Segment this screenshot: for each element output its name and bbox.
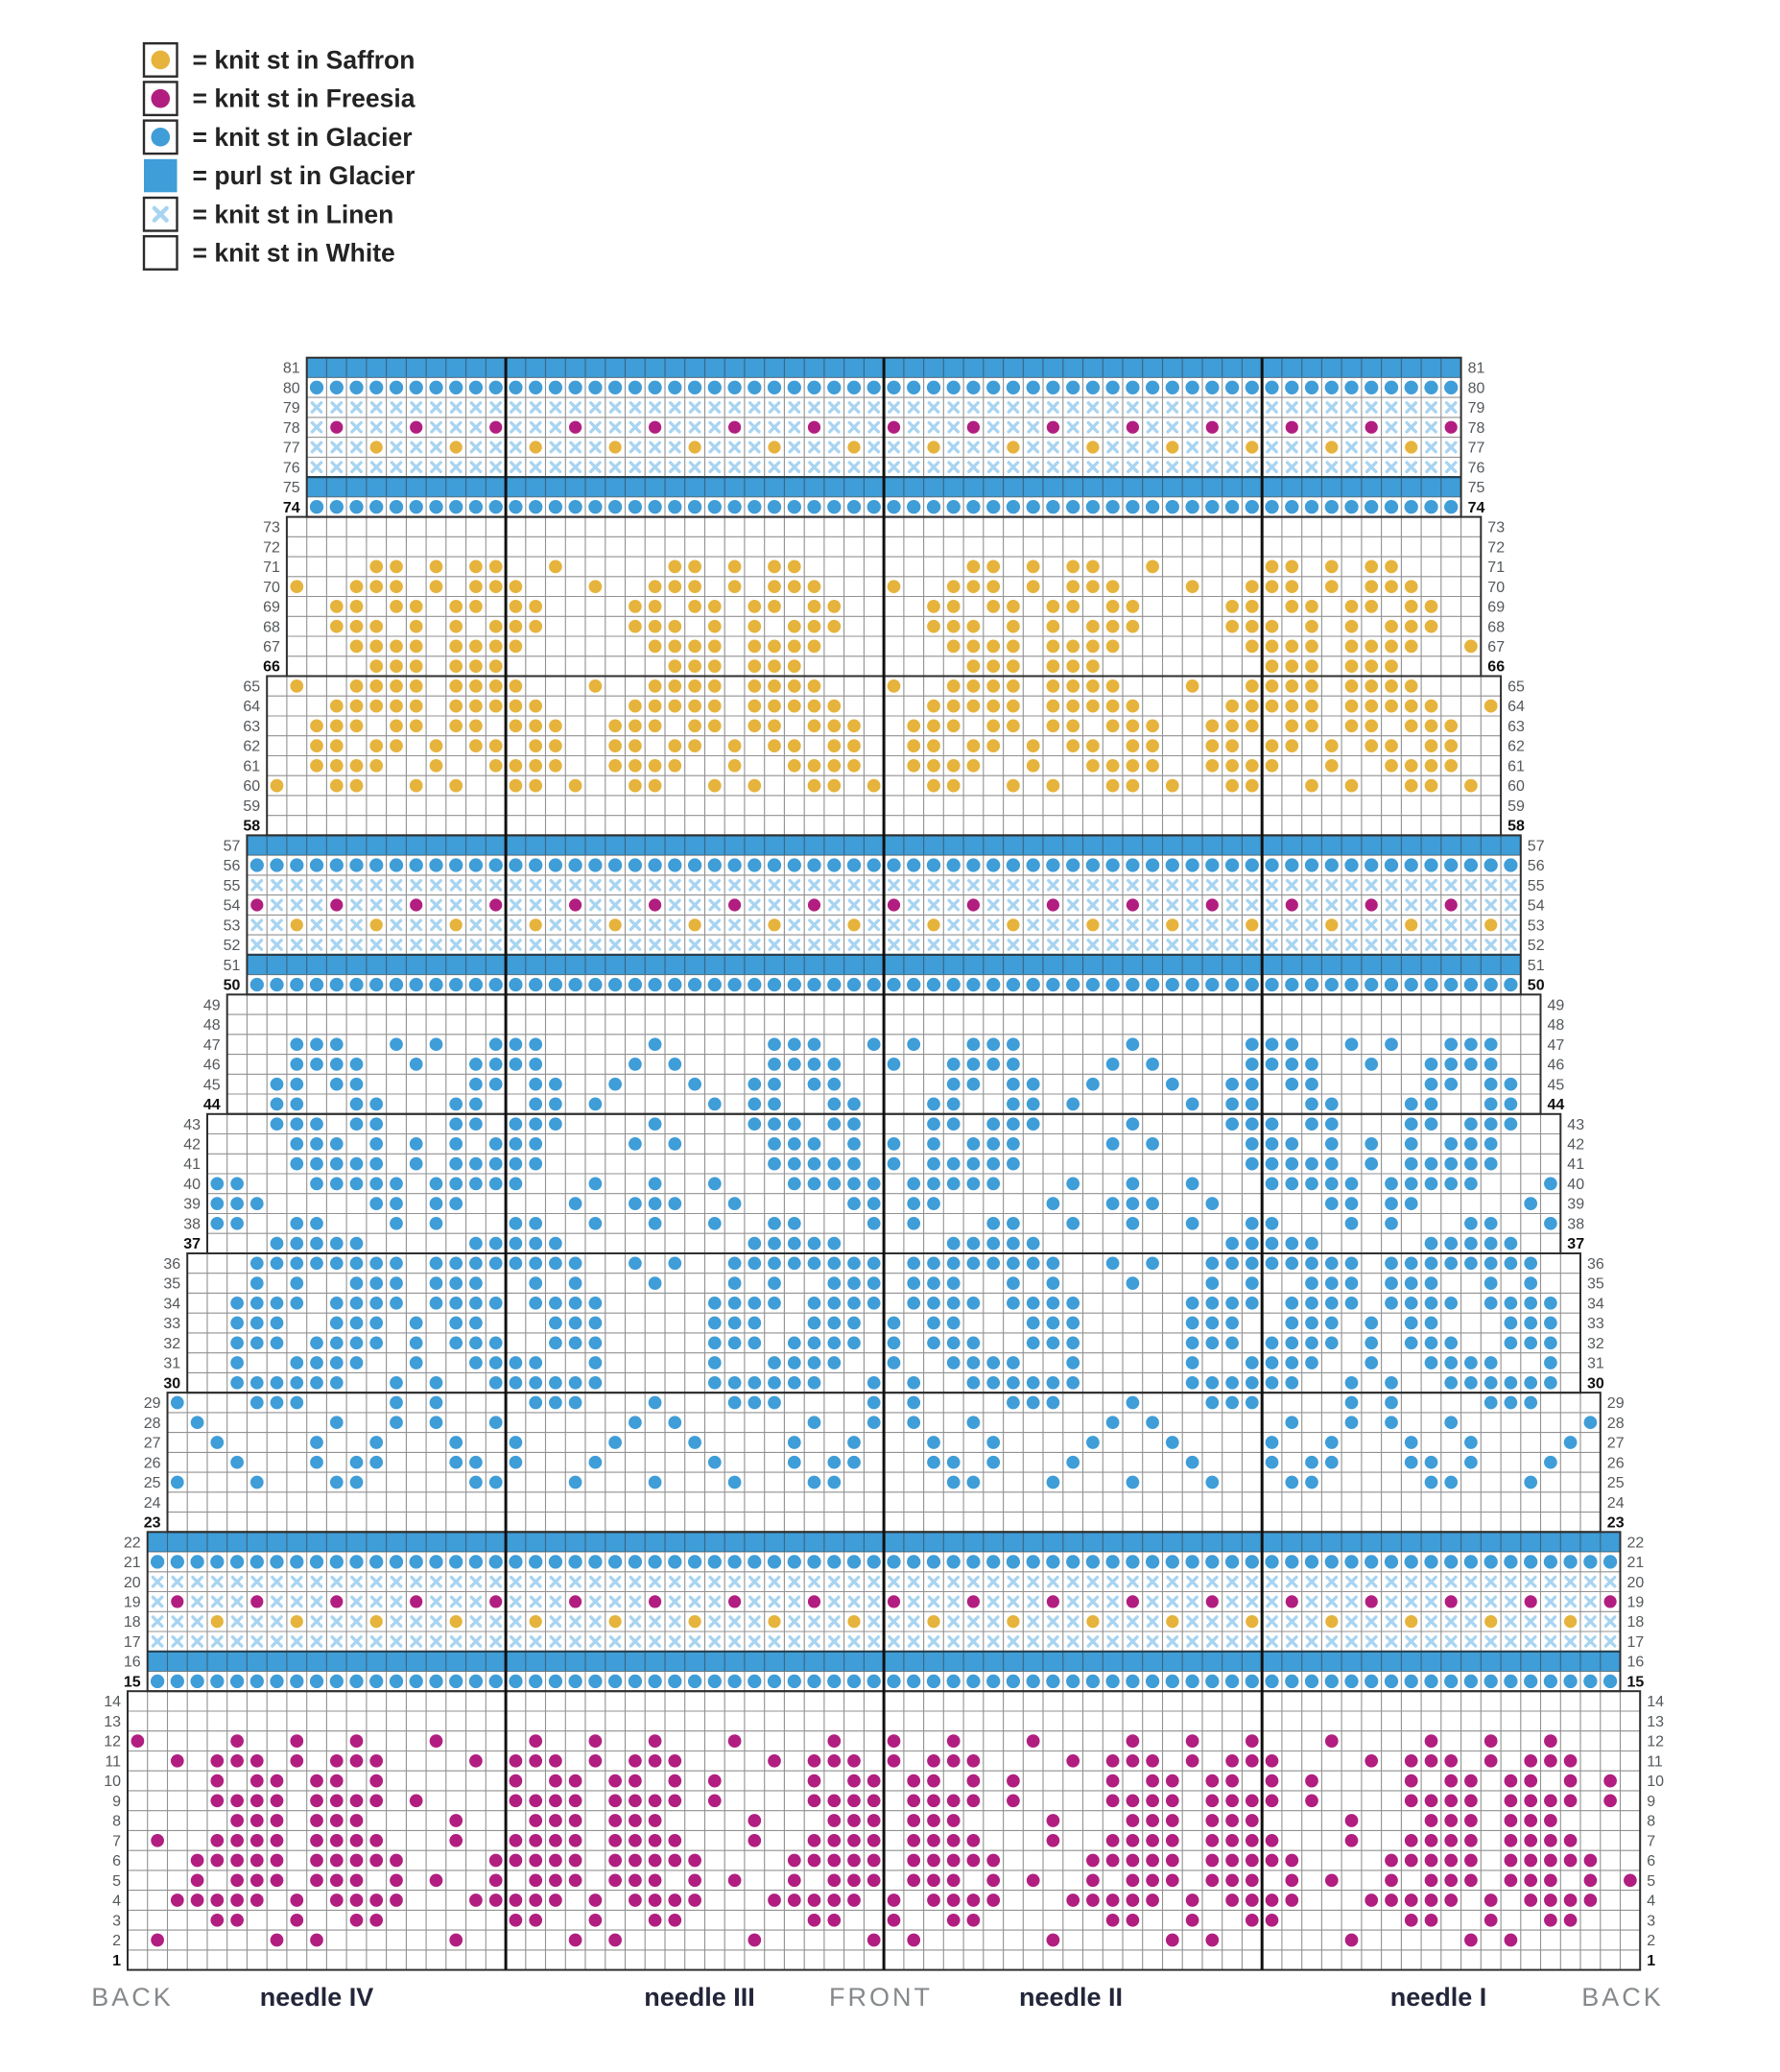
svg-text:55: 55 xyxy=(224,878,241,894)
svg-text:65: 65 xyxy=(243,679,260,696)
svg-text:26: 26 xyxy=(1607,1455,1625,1471)
svg-text:FRONT: FRONT xyxy=(829,1983,933,2012)
svg-text:40: 40 xyxy=(1567,1177,1584,1193)
svg-text:needle IV: needle IV xyxy=(260,1983,374,2012)
svg-text:42: 42 xyxy=(1567,1137,1584,1154)
svg-text:43: 43 xyxy=(183,1117,201,1133)
svg-text:7: 7 xyxy=(1647,1833,1655,1849)
svg-text:59: 59 xyxy=(1507,798,1525,815)
svg-text:24: 24 xyxy=(1607,1495,1625,1512)
svg-text:68: 68 xyxy=(263,619,280,635)
svg-text:35: 35 xyxy=(163,1276,180,1293)
svg-text:= knit st in Glacier: = knit st in Glacier xyxy=(193,123,413,152)
svg-text:24: 24 xyxy=(144,1495,161,1512)
svg-text:70: 70 xyxy=(1487,580,1505,596)
svg-text:5: 5 xyxy=(1647,1873,1655,1890)
svg-text:= knit st in Freesia: = knit st in Freesia xyxy=(193,84,415,113)
svg-text:23: 23 xyxy=(144,1515,161,1532)
svg-text:36: 36 xyxy=(163,1256,180,1273)
svg-text:12: 12 xyxy=(1647,1734,1664,1750)
svg-text:68: 68 xyxy=(1487,619,1505,635)
svg-text:49: 49 xyxy=(203,997,221,1013)
svg-text:21: 21 xyxy=(1627,1555,1645,1571)
svg-text:18: 18 xyxy=(1627,1614,1645,1631)
svg-text:2: 2 xyxy=(1647,1933,1655,1949)
svg-text:56: 56 xyxy=(224,858,241,874)
svg-text:14: 14 xyxy=(104,1694,121,1710)
svg-text:66: 66 xyxy=(1487,659,1505,676)
svg-text:41: 41 xyxy=(183,1156,201,1173)
svg-text:15: 15 xyxy=(1627,1675,1645,1691)
svg-text:65: 65 xyxy=(1507,679,1525,696)
svg-text:18: 18 xyxy=(124,1614,141,1631)
svg-text:76: 76 xyxy=(283,460,300,476)
svg-text:71: 71 xyxy=(263,560,280,576)
svg-text:needle II: needle II xyxy=(1019,1983,1123,2012)
svg-text:52: 52 xyxy=(1528,938,1545,954)
svg-text:62: 62 xyxy=(243,739,260,755)
svg-text:60: 60 xyxy=(243,778,260,795)
svg-text:11: 11 xyxy=(1647,1753,1663,1770)
svg-text:58: 58 xyxy=(243,819,260,835)
svg-text:26: 26 xyxy=(144,1455,161,1471)
svg-text:11: 11 xyxy=(105,1753,121,1770)
svg-text:40: 40 xyxy=(183,1177,201,1193)
svg-text:28: 28 xyxy=(1607,1416,1625,1432)
svg-text:2: 2 xyxy=(112,1933,121,1949)
svg-text:25: 25 xyxy=(144,1475,161,1491)
svg-text:31: 31 xyxy=(163,1356,180,1372)
svg-text:53: 53 xyxy=(1528,917,1545,934)
svg-text:50: 50 xyxy=(1528,978,1545,994)
svg-text:47: 47 xyxy=(1548,1037,1565,1054)
svg-text:42: 42 xyxy=(183,1137,201,1154)
svg-text:8: 8 xyxy=(112,1814,121,1830)
svg-text:77: 77 xyxy=(283,441,300,457)
svg-text:30: 30 xyxy=(1587,1375,1604,1392)
svg-text:62: 62 xyxy=(1507,739,1525,755)
svg-text:22: 22 xyxy=(124,1535,141,1551)
svg-text:81: 81 xyxy=(283,361,300,377)
svg-text:81: 81 xyxy=(1468,361,1485,377)
svg-text:58: 58 xyxy=(1507,819,1525,835)
svg-text:55: 55 xyxy=(1528,878,1545,894)
svg-text:13: 13 xyxy=(104,1714,121,1730)
svg-text:61: 61 xyxy=(243,758,260,774)
svg-text:78: 78 xyxy=(1468,420,1485,437)
svg-text:45: 45 xyxy=(203,1077,221,1093)
svg-text:13: 13 xyxy=(1647,1714,1664,1730)
svg-text:33: 33 xyxy=(1587,1316,1604,1332)
svg-text:75: 75 xyxy=(1468,480,1485,496)
svg-text:38: 38 xyxy=(183,1216,201,1232)
svg-text:80: 80 xyxy=(1468,380,1485,396)
svg-text:69: 69 xyxy=(1487,600,1505,616)
svg-text:79: 79 xyxy=(283,400,300,417)
svg-text:30: 30 xyxy=(163,1375,180,1392)
svg-text:27: 27 xyxy=(144,1436,161,1452)
svg-text:1: 1 xyxy=(1647,1953,1655,1969)
svg-text:BACK: BACK xyxy=(91,1983,174,2012)
svg-text:74: 74 xyxy=(1468,500,1485,516)
svg-text:= knit st in White: = knit st in White xyxy=(193,238,395,267)
svg-text:33: 33 xyxy=(163,1316,180,1332)
svg-text:29: 29 xyxy=(1607,1395,1625,1412)
svg-text:47: 47 xyxy=(203,1037,221,1054)
svg-text:3: 3 xyxy=(1647,1913,1655,1929)
svg-text:8: 8 xyxy=(1647,1814,1655,1830)
svg-text:37: 37 xyxy=(183,1236,201,1252)
svg-text:61: 61 xyxy=(1507,758,1525,774)
svg-text:32: 32 xyxy=(1587,1336,1604,1352)
svg-text:20: 20 xyxy=(1627,1575,1645,1591)
svg-text:31: 31 xyxy=(1587,1356,1604,1372)
svg-text:6: 6 xyxy=(112,1853,121,1870)
svg-text:4: 4 xyxy=(112,1893,121,1910)
svg-text:15: 15 xyxy=(124,1675,141,1691)
svg-text:needle I: needle I xyxy=(1390,1983,1487,2012)
svg-text:5: 5 xyxy=(112,1873,121,1890)
svg-text:51: 51 xyxy=(224,958,241,974)
svg-text:4: 4 xyxy=(1647,1893,1655,1910)
svg-text:80: 80 xyxy=(283,380,300,396)
svg-text:22: 22 xyxy=(1627,1535,1645,1551)
svg-text:20: 20 xyxy=(124,1575,141,1591)
svg-text:44: 44 xyxy=(203,1097,221,1113)
svg-text:38: 38 xyxy=(1567,1216,1584,1232)
svg-text:67: 67 xyxy=(263,639,280,655)
svg-text:70: 70 xyxy=(263,580,280,596)
svg-text:78: 78 xyxy=(283,420,300,437)
svg-text:48: 48 xyxy=(203,1017,221,1034)
svg-text:needle III: needle III xyxy=(644,1983,755,2012)
svg-text:63: 63 xyxy=(1507,719,1525,735)
svg-text:57: 57 xyxy=(224,838,241,854)
svg-text:56: 56 xyxy=(1528,858,1545,874)
svg-text:43: 43 xyxy=(1567,1117,1584,1133)
svg-text:73: 73 xyxy=(1487,520,1505,536)
svg-text:46: 46 xyxy=(1548,1058,1565,1074)
svg-text:14: 14 xyxy=(1647,1694,1664,1710)
svg-text:63: 63 xyxy=(243,719,260,735)
svg-text:34: 34 xyxy=(1587,1296,1604,1312)
svg-text:35: 35 xyxy=(1587,1276,1604,1293)
svg-text:49: 49 xyxy=(1548,997,1565,1013)
svg-text:54: 54 xyxy=(224,898,241,915)
svg-text:76: 76 xyxy=(1468,460,1485,476)
svg-text:6: 6 xyxy=(1647,1853,1655,1870)
svg-text:64: 64 xyxy=(1507,699,1525,715)
svg-text:29: 29 xyxy=(144,1395,161,1412)
svg-text:45: 45 xyxy=(1548,1077,1565,1093)
svg-text:27: 27 xyxy=(1607,1436,1625,1452)
svg-text:16: 16 xyxy=(124,1655,141,1671)
svg-text:57: 57 xyxy=(1528,838,1545,854)
svg-text:19: 19 xyxy=(124,1595,141,1611)
svg-text:3: 3 xyxy=(112,1913,121,1929)
svg-text:51: 51 xyxy=(1528,958,1545,974)
svg-text:74: 74 xyxy=(283,500,300,516)
svg-text:67: 67 xyxy=(1487,639,1505,655)
svg-text:17: 17 xyxy=(1627,1634,1645,1651)
svg-text:59: 59 xyxy=(243,798,260,815)
svg-text:39: 39 xyxy=(183,1197,201,1213)
svg-text:= knit st in Saffron: = knit st in Saffron xyxy=(193,45,415,74)
svg-text:72: 72 xyxy=(1487,539,1505,556)
svg-text:12: 12 xyxy=(104,1734,121,1750)
svg-text:64: 64 xyxy=(243,699,260,715)
svg-text:1: 1 xyxy=(112,1953,121,1969)
svg-text:16: 16 xyxy=(1627,1655,1645,1671)
svg-text:28: 28 xyxy=(144,1416,161,1432)
svg-text:10: 10 xyxy=(104,1774,121,1790)
svg-text:53: 53 xyxy=(224,917,241,934)
svg-text:41: 41 xyxy=(1567,1156,1584,1173)
svg-text:9: 9 xyxy=(1647,1794,1655,1810)
svg-text:9: 9 xyxy=(112,1794,121,1810)
svg-text:44: 44 xyxy=(1548,1097,1565,1113)
svg-text:72: 72 xyxy=(263,539,280,556)
svg-text:36: 36 xyxy=(1587,1256,1604,1273)
svg-text:50: 50 xyxy=(224,978,241,994)
svg-text:48: 48 xyxy=(1548,1017,1565,1034)
svg-text:10: 10 xyxy=(1647,1774,1664,1790)
svg-text:39: 39 xyxy=(1567,1197,1584,1213)
svg-text:= knit st in Linen: = knit st in Linen xyxy=(193,200,394,228)
svg-text:46: 46 xyxy=(203,1058,221,1074)
svg-text:7: 7 xyxy=(112,1833,121,1849)
svg-text:79: 79 xyxy=(1468,400,1485,417)
svg-text:21: 21 xyxy=(124,1555,141,1571)
svg-text:23: 23 xyxy=(1607,1515,1625,1532)
svg-text:BACK: BACK xyxy=(1581,1983,1664,2012)
svg-text:66: 66 xyxy=(263,659,280,676)
svg-text:37: 37 xyxy=(1567,1236,1584,1252)
svg-text:60: 60 xyxy=(1507,778,1525,795)
svg-text:19: 19 xyxy=(1627,1595,1645,1611)
svg-text:75: 75 xyxy=(283,480,300,496)
svg-text:54: 54 xyxy=(1528,898,1545,915)
svg-text:52: 52 xyxy=(224,938,241,954)
svg-text:25: 25 xyxy=(1607,1475,1625,1491)
svg-text:73: 73 xyxy=(263,520,280,536)
svg-text:32: 32 xyxy=(163,1336,180,1352)
svg-text:71: 71 xyxy=(1487,560,1505,576)
svg-text:77: 77 xyxy=(1468,441,1485,457)
svg-text:69: 69 xyxy=(263,600,280,616)
svg-text:= purl st in Glacier: = purl st in Glacier xyxy=(193,161,415,190)
svg-text:17: 17 xyxy=(124,1634,141,1651)
svg-text:34: 34 xyxy=(163,1296,180,1312)
